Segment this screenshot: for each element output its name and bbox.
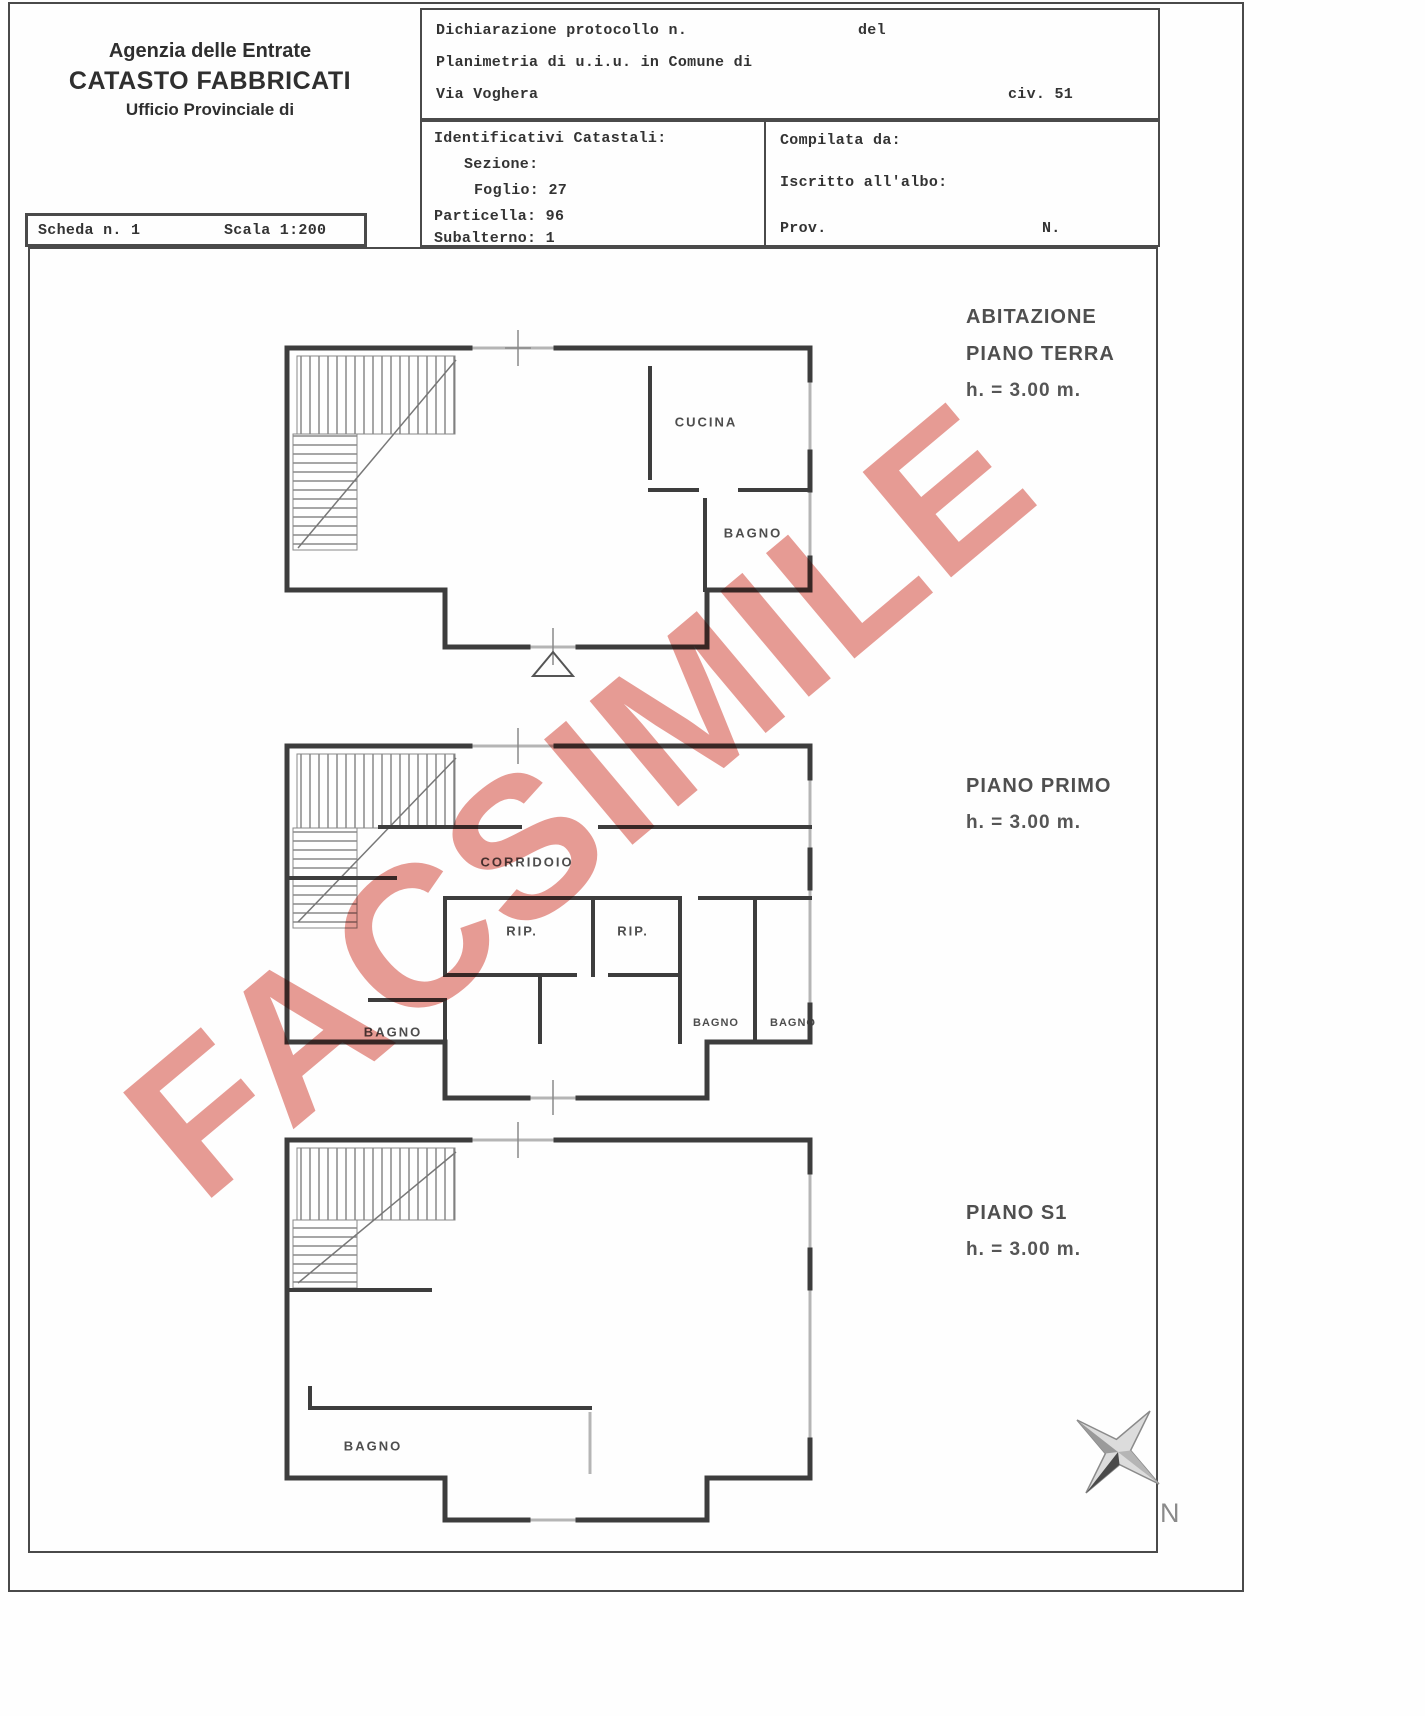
opening-tick xyxy=(505,330,553,665)
window-opening xyxy=(470,1140,810,1520)
window-opening xyxy=(470,348,810,647)
plan-piano-primo xyxy=(287,728,810,1115)
cadastral-sheet: Agenzia delle Entrate CATASTO FABBRICATI… xyxy=(0,0,1425,1716)
window-opening xyxy=(470,746,810,1098)
stairs-icon xyxy=(297,356,455,434)
opening-tick xyxy=(518,728,553,1115)
plan-piano-terra xyxy=(287,330,810,676)
plan-piano-s1 xyxy=(287,1122,810,1520)
stairs-icon xyxy=(297,1148,455,1220)
interior-walls xyxy=(287,1290,590,1408)
interior-walls xyxy=(650,368,810,590)
stairs-icon xyxy=(297,754,455,828)
floorplan-drawing xyxy=(0,0,1425,1716)
interior-walls xyxy=(287,827,810,1042)
compass-icon xyxy=(1045,1379,1191,1525)
stairs-icon xyxy=(293,1220,357,1288)
stairs-icon xyxy=(293,434,357,550)
